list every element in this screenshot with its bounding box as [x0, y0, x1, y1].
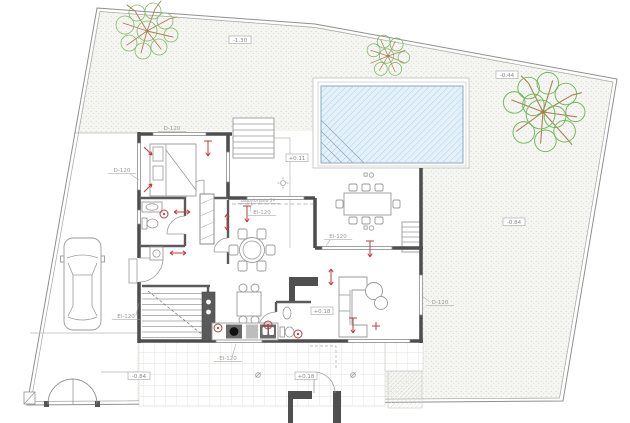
- elevation-value: -1.30: [233, 38, 248, 44]
- annotation-text: bajo forjado 2º: [241, 198, 275, 204]
- elevation-value: +0.18: [314, 309, 331, 315]
- elevation-label: -0.84: [128, 372, 150, 380]
- elevation-label: +0.11: [286, 154, 308, 162]
- opening-code: D-120: [432, 300, 449, 306]
- entry-porch-pier: [333, 391, 341, 423]
- elevation-label: +0.18: [295, 372, 317, 380]
- terrace-slider-door: [322, 247, 392, 250]
- elevation-label: -0.84: [503, 218, 525, 226]
- planter-bed: [388, 371, 422, 408]
- bedroom-north-window: [153, 133, 206, 136]
- terrace-tiles: [139, 342, 385, 406]
- bedroom-west-window: [138, 143, 141, 190]
- elevation-value: +0.18: [298, 374, 315, 380]
- car: [61, 238, 105, 330]
- site-plan-drawing: -1.30 -0.44 -0.84 +0.11 +0.18 +0.18 -0.8…: [0, 0, 630, 423]
- opening-code: D-120: [114, 168, 131, 174]
- opening-code: El-120: [253, 210, 271, 216]
- elevation-label: -0.44: [496, 71, 518, 79]
- car-mirror-left: [61, 256, 65, 262]
- living-east-window: [420, 275, 423, 315]
- opening-code: D-120: [164, 126, 181, 132]
- car-mirror-right: [101, 256, 105, 262]
- swimming-pool: [318, 82, 466, 166]
- elevation-value: +0.11: [289, 156, 306, 162]
- bath-west-window: [138, 210, 141, 224]
- elevation-label: +0.18: [311, 307, 333, 315]
- kitchen-peninsula-return: [289, 277, 295, 301]
- living-south-window: [348, 340, 410, 343]
- pool-water-hatch: [321, 86, 463, 163]
- elevation-value: -0.84: [507, 220, 522, 226]
- entry-porch-wall: [288, 391, 312, 399]
- entry-porch-wall-stub: [288, 399, 293, 423]
- stair-northeast: [233, 118, 274, 158]
- wardrobe: [200, 194, 214, 244]
- terrace-step-tiles: [385, 342, 423, 371]
- floor-plan-canvas: -1.30 -0.44 -0.84 +0.11 +0.18 +0.18 -0.8…: [0, 0, 630, 423]
- bedroom-bed: [150, 144, 196, 196]
- elevation-value: -0.44: [500, 73, 515, 79]
- opening-code: El-120: [219, 356, 237, 362]
- washing-machine: [150, 247, 163, 260]
- opening-code: El-120: [329, 234, 347, 240]
- porch-west-glass: [227, 152, 230, 182]
- opening-code: El-120: [117, 314, 135, 320]
- slab-annotation: bajo forjado 2º: [238, 198, 280, 204]
- elevation-label: -1.30: [229, 36, 251, 44]
- elevation-value: -0.84: [132, 374, 147, 380]
